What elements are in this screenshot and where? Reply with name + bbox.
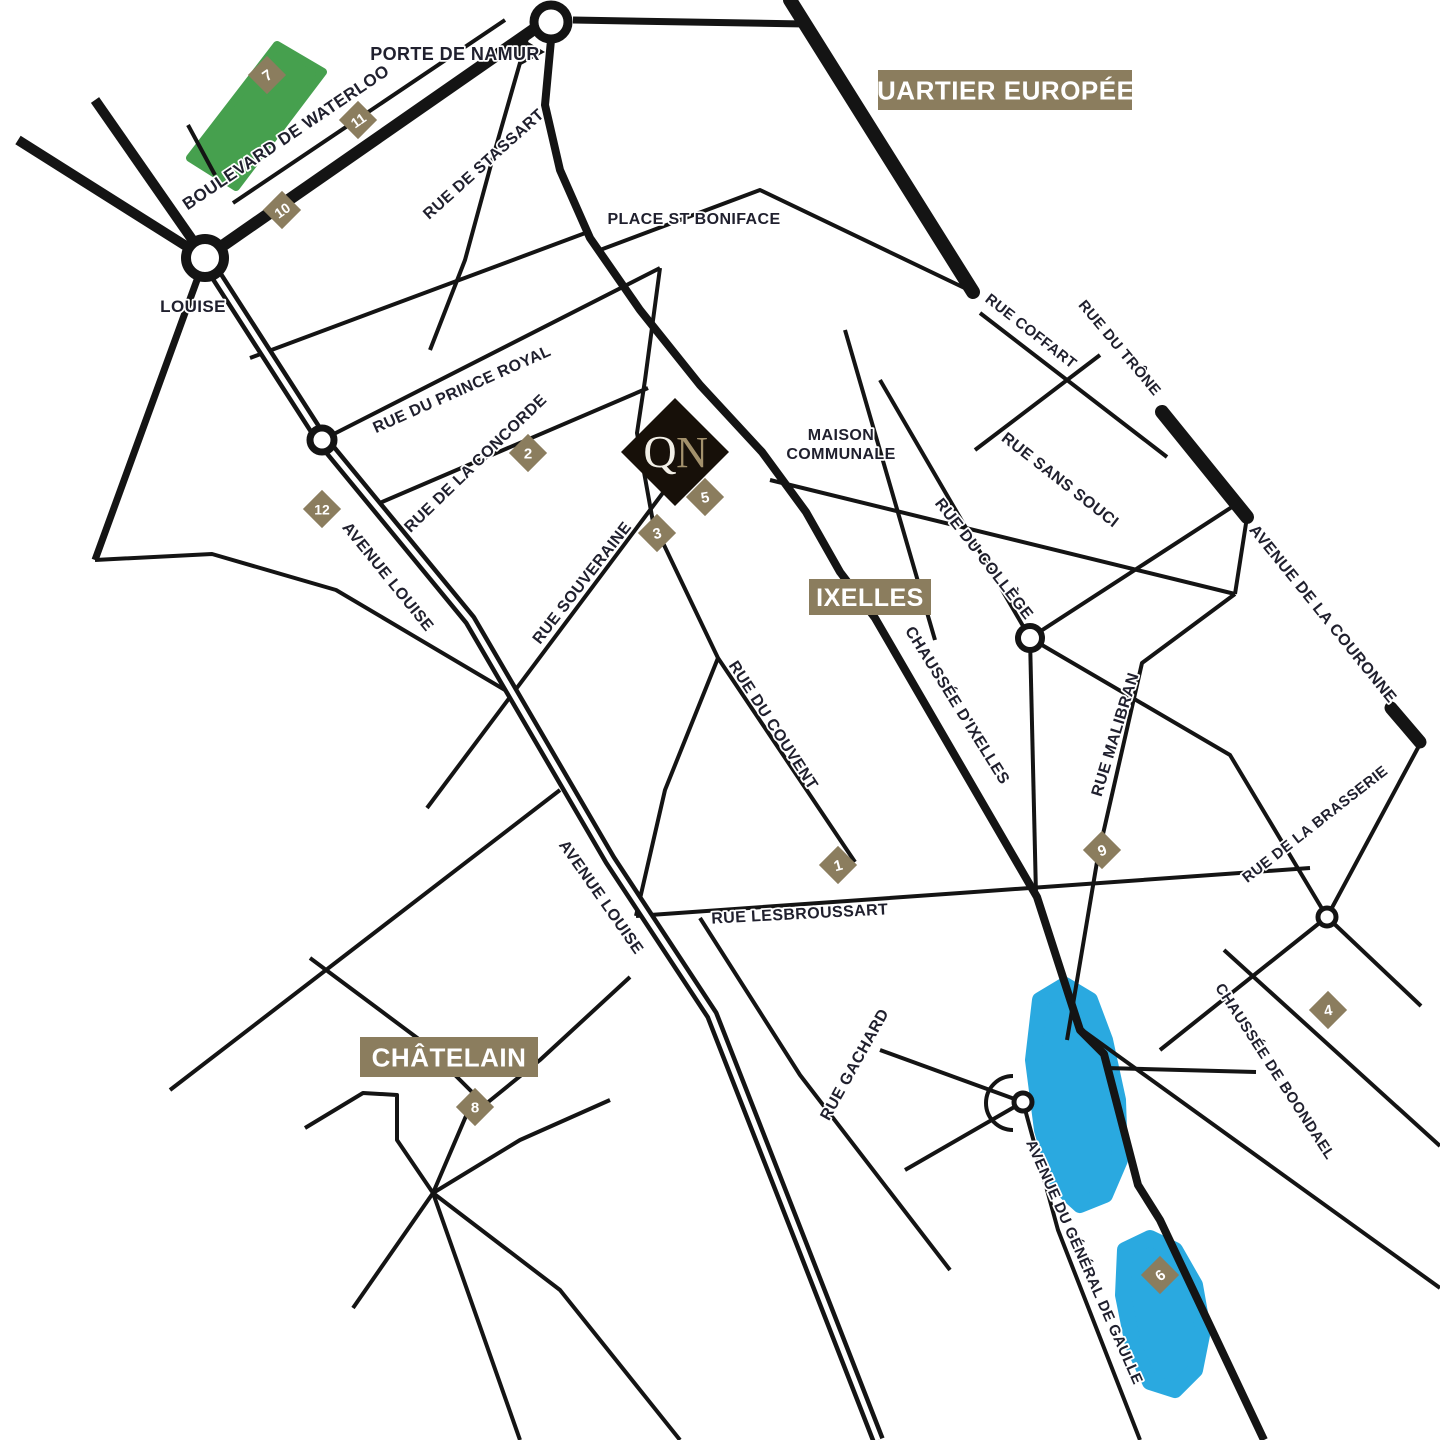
marker-number: 2 xyxy=(524,446,532,463)
street-label-place-st-boniface: PLACE ST BONIFACE xyxy=(607,211,780,228)
qn-letter-n: N xyxy=(676,428,708,477)
street-label-porte-de-namur: PORTE DE NAMUR xyxy=(370,44,540,64)
road-chaussee-d-ixelles xyxy=(545,40,1264,1440)
region-badge-label: QUARTIER EUROPÉEN xyxy=(856,75,1153,105)
junction-ponds-node xyxy=(1014,1093,1032,1111)
street-label-rue-du-college: RUE DU COLLÈGE xyxy=(931,494,1038,623)
road-rue-du-prince-royal xyxy=(250,232,588,358)
map-marker-8[interactable]: 8 xyxy=(456,1088,494,1126)
road-pond-node-west-2 xyxy=(880,1050,1023,1102)
road-west-fork xyxy=(95,554,505,690)
street-label-rue-du-couvent: RUE DU COUVENT xyxy=(725,658,821,793)
marker-number: 12 xyxy=(314,502,330,518)
junction-porte-de-namur xyxy=(534,5,568,39)
road-petite-ceinture-nw-2 xyxy=(18,140,205,258)
road-ring-segment-couronne xyxy=(1391,708,1420,742)
street-label-rue-lesbroussart: RUE LESBROUSSART xyxy=(711,901,889,927)
street-label-avenue-de-la-couronne: AVENUE DE LA COURONNE xyxy=(1246,522,1400,706)
map-marker-2[interactable]: 2 xyxy=(509,434,547,472)
region-badge-label: IXELLES xyxy=(816,584,924,612)
street-label-avenue-louise-north: AVENUE LOUISE xyxy=(339,519,437,634)
map-marker-1[interactable]: 1 xyxy=(819,846,857,884)
road-chatelain-sw xyxy=(353,1193,433,1308)
road-fernand-cocq-brasserie xyxy=(1030,638,1327,917)
road-rue-de-la-concorde xyxy=(322,268,660,440)
map-marker-12[interactable]: 12 xyxy=(303,490,341,528)
road-ring-segment-trone xyxy=(1162,412,1247,517)
junction-brasserie-node xyxy=(1318,908,1336,926)
junction-louise xyxy=(186,239,224,277)
road-petite-ceinture-nw-1 xyxy=(95,100,205,258)
road-chatelain-e xyxy=(433,1100,610,1193)
marker-number: 8 xyxy=(471,1100,479,1117)
street-label-rue-coffart: RUE COFFART xyxy=(982,291,1080,373)
road-rue-saint-boniface xyxy=(637,268,855,862)
region-badge-ixelles: IXELLES xyxy=(809,579,931,615)
junction-fernand-cocq xyxy=(1018,626,1042,650)
junction-louise-south xyxy=(310,428,334,452)
region-badge-chatelain: CHÂTELAIN xyxy=(360,1037,538,1077)
road-chatelain-s xyxy=(433,1193,520,1440)
street-label-rue-gachard: RUE GACHARD xyxy=(817,1006,892,1123)
region-badge-label: CHÂTELAIN xyxy=(372,1042,527,1072)
street-label-rue-de-la-brasserie: RUE DE LA BRASSERIE xyxy=(1239,762,1391,886)
street-label-rue-sans-souci: RUE SANS SOUCI xyxy=(998,430,1121,532)
map-marker-9[interactable]: 9 xyxy=(1083,831,1121,869)
road-fernand-cocq-south xyxy=(1030,638,1036,895)
map-marker-4[interactable]: 4 xyxy=(1309,991,1347,1029)
road-brasserie-se xyxy=(1327,917,1421,1006)
road-coffart-cross xyxy=(975,355,1100,450)
region-badge-quartier-europeen: QUARTIER EUROPÉEN xyxy=(856,70,1153,110)
street-label-louise: LOUISE xyxy=(160,297,226,316)
street-label-rue-du-trone: RUE DU TRÔNE xyxy=(1075,296,1165,399)
street-label-line: MAISON xyxy=(808,427,874,444)
road-top-east-road xyxy=(573,20,805,24)
road-chatelain-hook xyxy=(305,1093,433,1193)
qn-letter-q: Q xyxy=(643,426,676,477)
road-couvent-west-branch xyxy=(636,658,718,916)
qn-logo-text: QN xyxy=(643,426,708,477)
ixelles-map-svg: PORTE DE NAMURBOULEVARD DE WATERLOORUE D… xyxy=(0,0,1440,1440)
road-ponds-cross-street xyxy=(1105,1068,1256,1072)
road-trone-connector xyxy=(1235,517,1247,594)
map-canvas: PORTE DE NAMURBOULEVARD DE WATERLOORUE D… xyxy=(0,0,1440,1440)
road-rue-malibran xyxy=(1067,594,1235,1040)
street-label-rue-souveraine: RUE SOUVERAINE xyxy=(530,519,636,647)
street-label-rue-de-stassart: RUE DE STASSART xyxy=(420,106,547,223)
street-label-line: COMMUNALE xyxy=(786,446,895,463)
road-pond-node-west-1 xyxy=(905,1102,1023,1170)
road-chatelain-se xyxy=(433,1193,680,1440)
